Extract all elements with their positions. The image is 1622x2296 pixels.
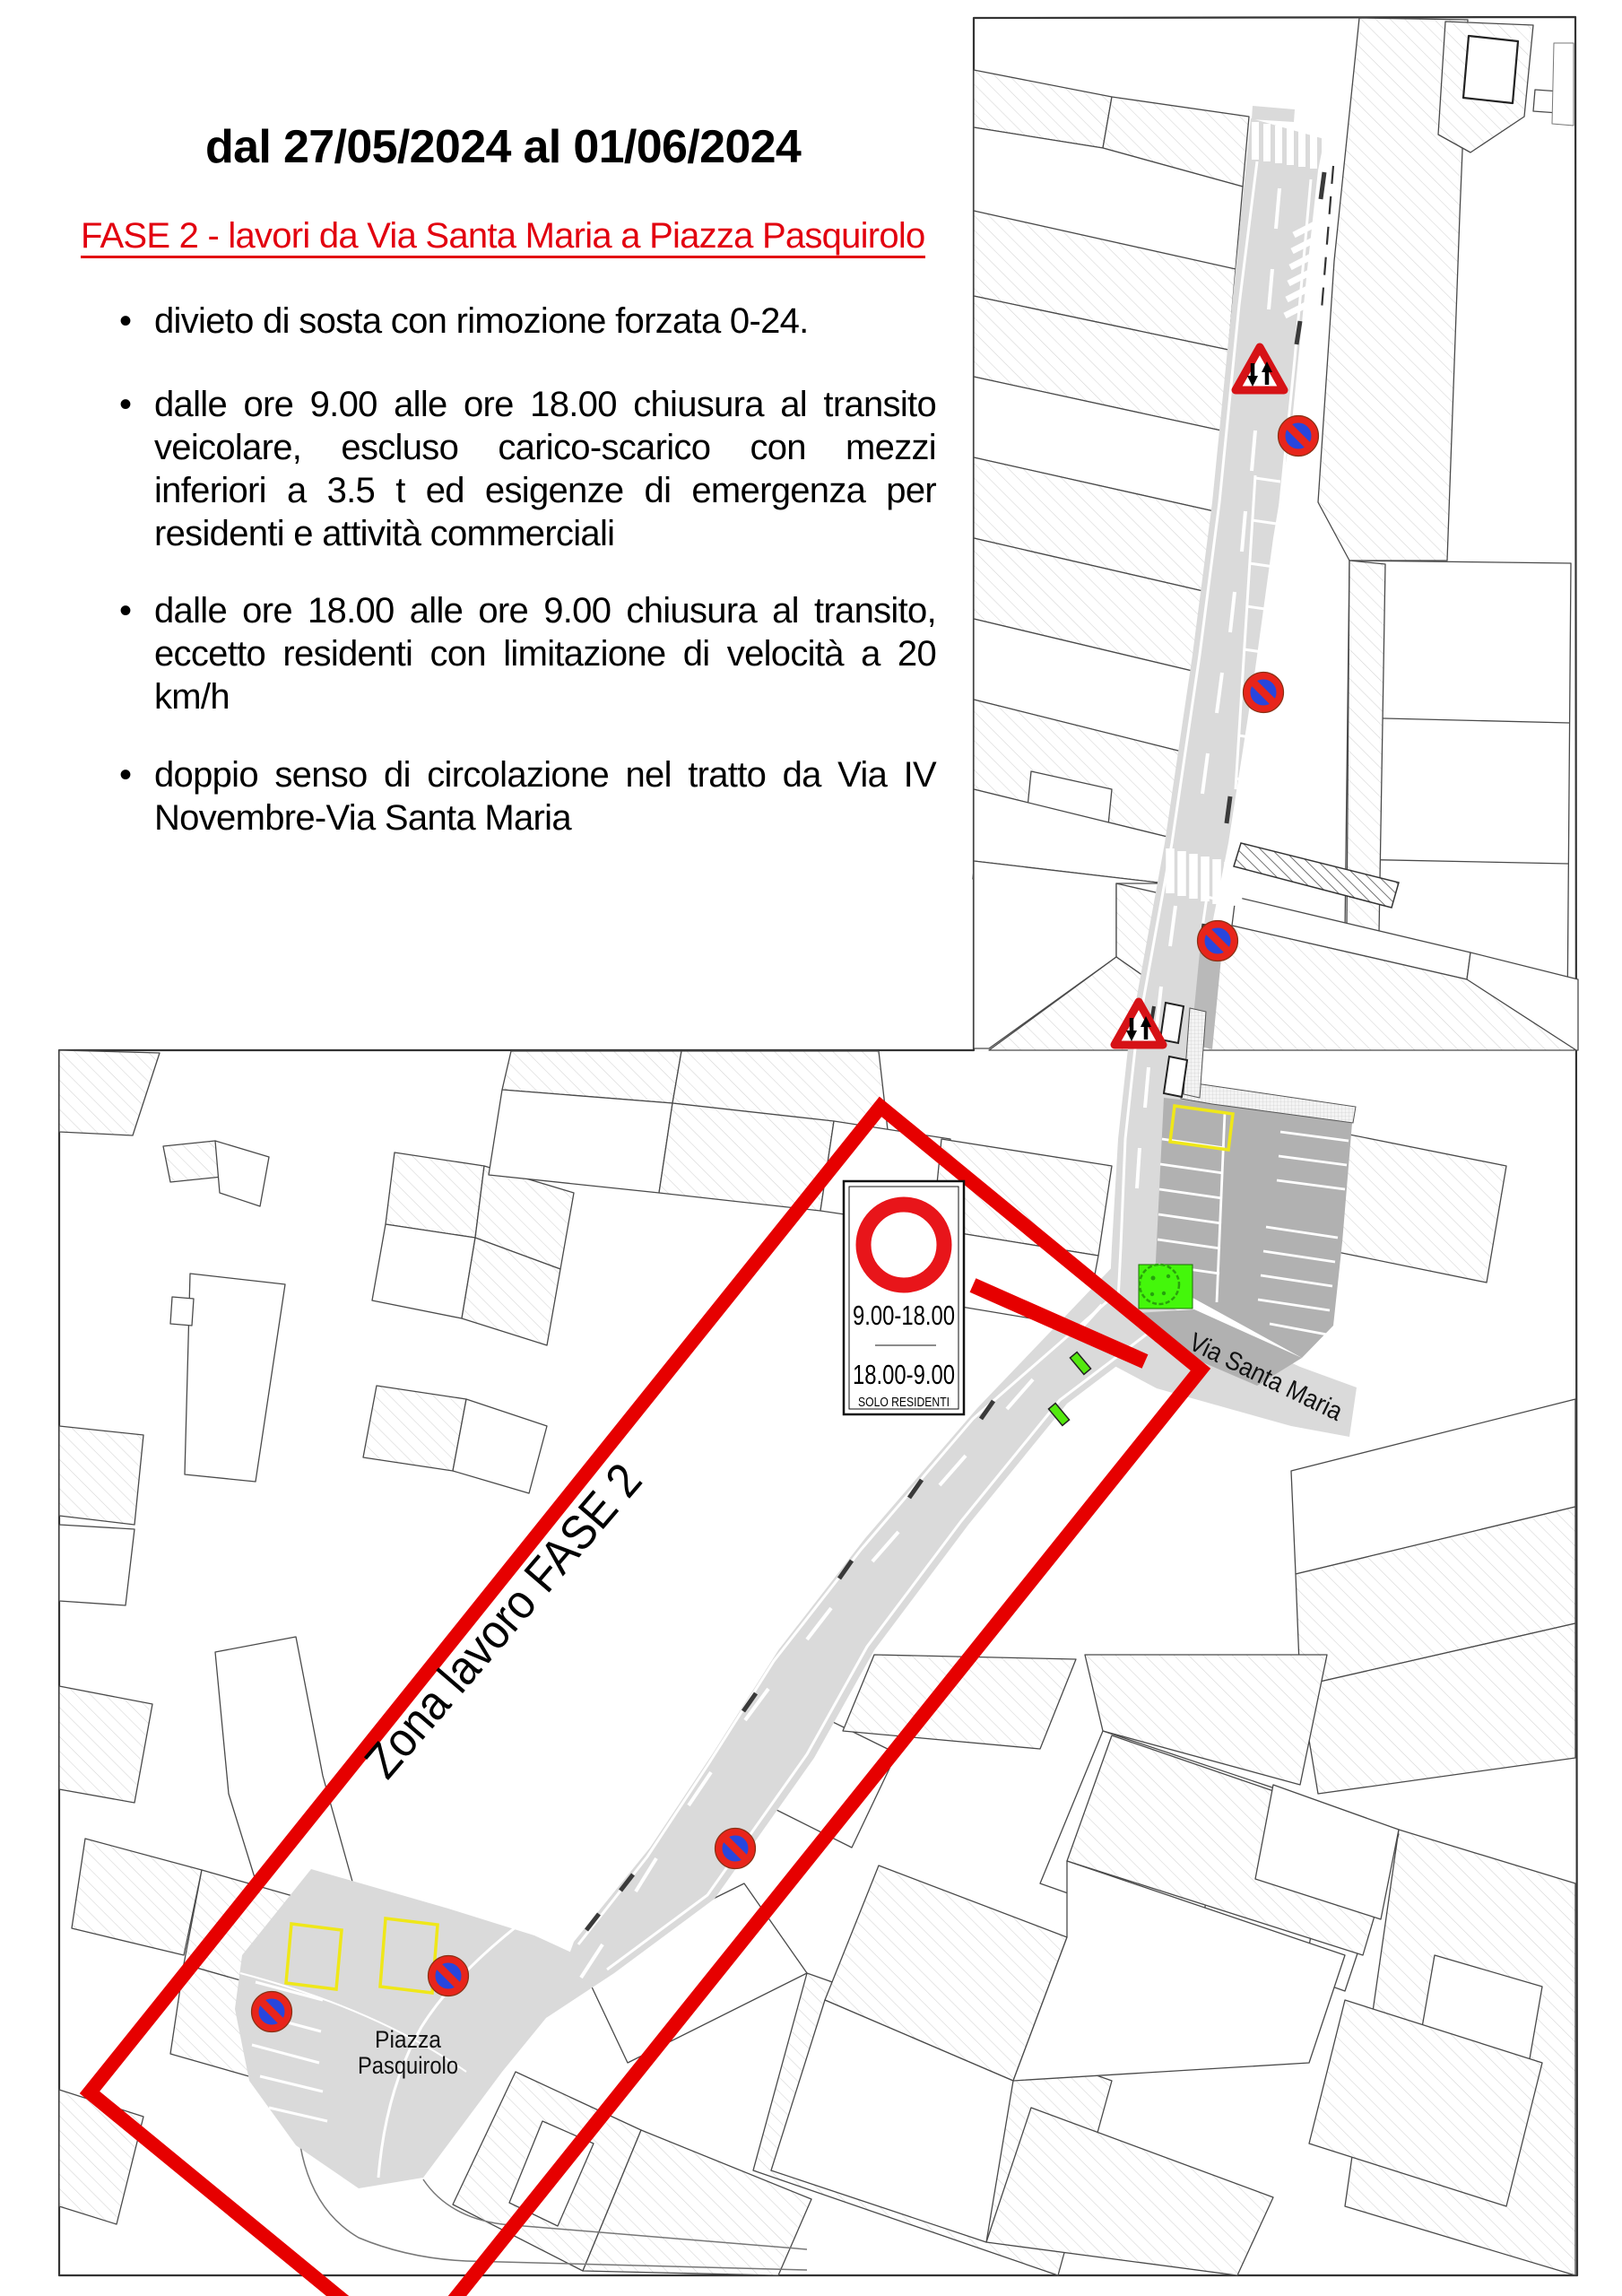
svg-text:Piazza: Piazza [375, 2026, 442, 2053]
svg-text:18.00-9.00: 18.00-9.00 [853, 1359, 955, 1390]
svg-text:Zona lavoro FASE 2: Zona lavoro FASE 2 [355, 1454, 653, 1788]
svg-text:SOLO RESIDENTI: SOLO RESIDENTI [858, 1395, 950, 1410]
svg-text:Pasquirolo: Pasquirolo [358, 2052, 458, 2079]
svg-text:9.00-18.00: 9.00-18.00 [853, 1300, 955, 1331]
